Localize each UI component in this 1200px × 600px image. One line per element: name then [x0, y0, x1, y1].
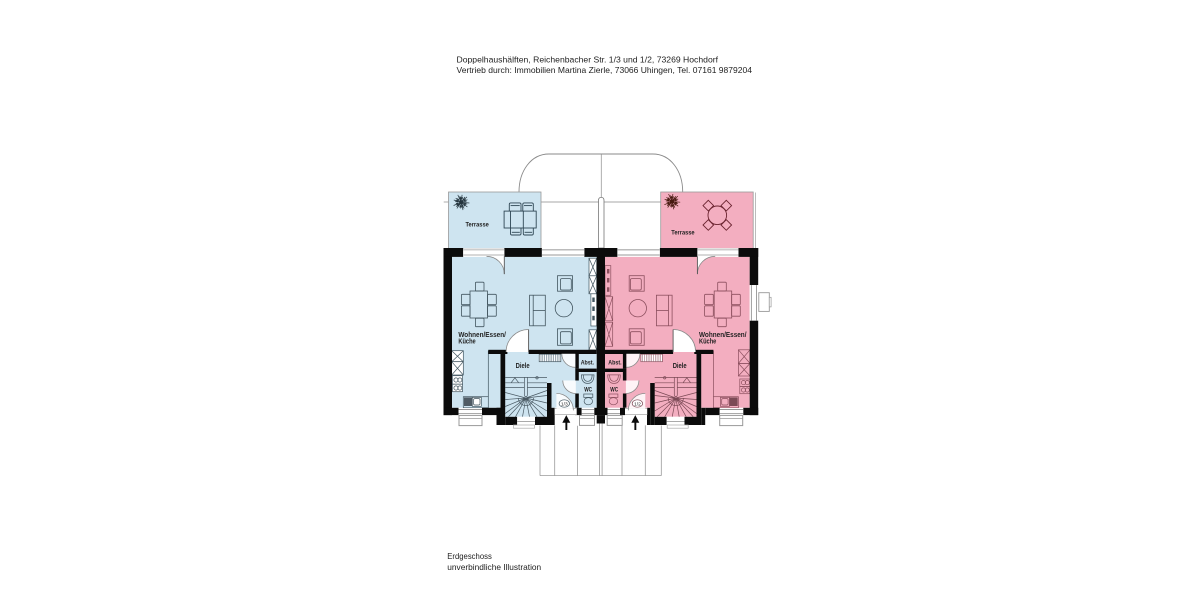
svg-text:Abst.: Abst. — [581, 360, 594, 367]
svg-text:Doppelhaushälften, Reichenbach: Doppelhaushälften, Reichenbacher Str. 1/… — [457, 54, 719, 64]
svg-text:Abst.: Abst. — [608, 360, 621, 367]
svg-text:WC: WC — [584, 387, 592, 394]
svg-text:Diele: Diele — [516, 363, 530, 370]
svg-text:WC: WC — [610, 387, 618, 394]
svg-text:1/2: 1/2 — [634, 401, 641, 407]
svg-text:Erdgeschoss: Erdgeschoss — [447, 551, 492, 561]
svg-text:unverbindliche Illustration: unverbindliche Illustration — [447, 562, 541, 572]
svg-text:Vertrieb durch: Immobilien Mar: Vertrieb durch: Immobilien Martina Zierl… — [457, 65, 753, 75]
svg-text:Küche: Küche — [699, 338, 716, 345]
svg-text:Küche: Küche — [458, 338, 475, 345]
svg-text:Terrasse: Terrasse — [671, 230, 695, 237]
svg-text:1/3: 1/3 — [561, 401, 568, 407]
svg-text:Diele: Diele — [673, 363, 687, 370]
svg-text:Terrasse: Terrasse — [466, 222, 490, 229]
